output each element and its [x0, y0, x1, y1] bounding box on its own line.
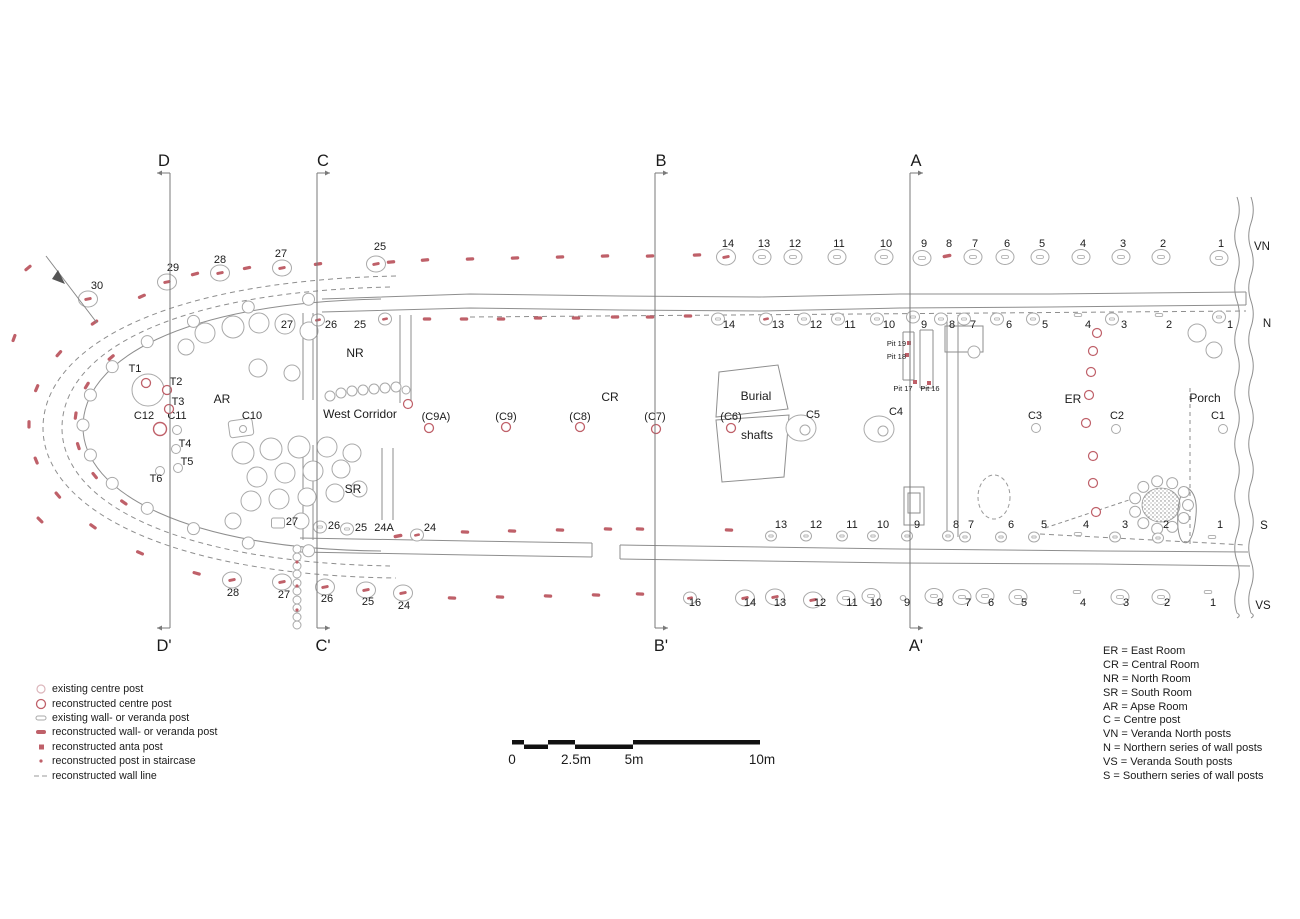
post-number: T6 [150, 473, 163, 485]
apse-wall-stone [187, 523, 199, 535]
post-row-label: VS [1255, 600, 1271, 612]
post-number: 1 [1217, 519, 1223, 531]
post: 25 [367, 241, 387, 272]
apse-wall-stone [77, 419, 89, 431]
post-number: 12 [789, 238, 801, 250]
room-label: West Corridor [323, 407, 397, 421]
stone [178, 339, 194, 355]
post-number: 11 [846, 519, 857, 531]
stone [325, 391, 335, 401]
post-number: 4 [1083, 519, 1089, 531]
reconstructed-post-dash [36, 516, 44, 524]
section-line-A: AA' [909, 152, 923, 655]
post: 4 [1073, 591, 1086, 610]
post: 12 [804, 592, 827, 609]
reconstructed-post-dash [55, 349, 63, 357]
post-number: 1 [1218, 238, 1224, 250]
reconstructed-post-dash [91, 471, 99, 480]
post: 25 [341, 522, 368, 535]
post-number: 3 [1120, 238, 1126, 250]
stone [343, 444, 361, 462]
reconstructed-post-dash [693, 253, 702, 256]
stone [225, 513, 241, 529]
post: 5 [1031, 238, 1049, 265]
post-number: 4 [1085, 319, 1091, 331]
abbreviation-item: VS = Veranda South posts [1103, 755, 1264, 769]
stone [336, 388, 346, 398]
post: T2 [163, 376, 183, 395]
abbreviation-item: ER = East Room [1103, 644, 1264, 658]
post-number: 9 [921, 319, 927, 331]
section-label-top: D [158, 152, 170, 170]
post: 1 [1213, 311, 1234, 331]
post: 4 [1072, 238, 1090, 265]
reconstructed-centre-post [1089, 479, 1098, 488]
reconstructed-post-dash [496, 595, 505, 599]
post-number: 7 [970, 319, 976, 331]
post: 4 [1074, 519, 1089, 536]
post: C12 [134, 410, 167, 436]
post: 25 [354, 313, 392, 331]
post-number: 10 [877, 519, 889, 531]
hearth-stone [1138, 481, 1149, 492]
abbreviation-item: NR = North Room [1103, 672, 1264, 686]
post: C10 [228, 410, 262, 438]
apse-wall-stone [242, 301, 254, 313]
post-number: 24A [374, 522, 394, 534]
stone [380, 383, 390, 393]
reconstructed-post-dash [89, 523, 98, 531]
post-number: 6 [1008, 519, 1014, 531]
post: 11 [832, 313, 856, 331]
section-arrow-icon [918, 171, 923, 176]
archaeological-site-plan-page: 3029282725141312111098765432127262514131… [0, 0, 1300, 919]
reconstructed-post-dash [137, 293, 146, 299]
post: 13 [753, 238, 771, 265]
post-number: 10 [870, 597, 882, 609]
reconstructed-centre-post [1093, 329, 1102, 338]
post-number: 10 [883, 319, 895, 331]
post-number: T1 [129, 363, 142, 375]
post: 1 [1208, 519, 1223, 539]
stone [293, 621, 301, 629]
section-arrow-icon [157, 171, 162, 176]
section-arrow-icon [663, 171, 668, 176]
reconstructed-post-dash [119, 499, 128, 507]
scale-label: 0 [508, 752, 516, 767]
post-number: 13 [774, 597, 786, 609]
post-number: 1 [1227, 319, 1233, 331]
reconstructed-centre-post [1085, 391, 1094, 400]
apse-wall-stone [106, 361, 118, 373]
stone [391, 382, 401, 392]
apse-wall-stone [303, 293, 315, 305]
post-row-label: N [1263, 318, 1271, 330]
legend-item: reconstructed post in staircase [30, 754, 217, 768]
section-label-top: A [910, 152, 921, 170]
post-number: 16 [689, 597, 701, 609]
post-row-label: VN [1254, 241, 1270, 253]
reconstructed-post-dash [421, 258, 430, 262]
reconstructed-post-dash [461, 530, 470, 533]
hearth-stone [1167, 478, 1178, 489]
staircase-post [295, 608, 298, 611]
post-number: C2 [1110, 410, 1124, 422]
reconstructed-post-dash [497, 317, 506, 320]
room-label: Burial [741, 389, 772, 403]
post-number: 8 [946, 238, 952, 250]
reconstructed-post-dash [684, 314, 693, 317]
reconstructed-post-dash [393, 533, 403, 538]
post: 27 [272, 516, 299, 528]
reconstructed-post-dash [556, 255, 565, 258]
post-number: 25 [354, 319, 366, 331]
post-number: 3 [1123, 597, 1129, 609]
reconstructed-post-dash [73, 411, 77, 420]
post: 1 [1204, 591, 1216, 610]
post: T6 [150, 467, 165, 486]
post: 25 [357, 582, 376, 608]
post-number: 5 [1039, 238, 1045, 250]
abbreviation-item: VN = Veranda North posts [1103, 727, 1264, 741]
room-label: Porch [1189, 391, 1220, 405]
reconstructed-post-dash [942, 253, 952, 258]
post-number: 4 [1080, 597, 1086, 609]
scale-segment [548, 740, 575, 745]
post: 14 [717, 238, 736, 265]
apse-wall-stone [106, 477, 118, 489]
post: 28 [211, 254, 230, 281]
reconstructed-post-dash [508, 529, 517, 532]
reconstructed-post-dash [387, 260, 396, 264]
section-line-D: DD' [156, 152, 171, 655]
reconstructed-post-dash [556, 528, 565, 531]
stone [293, 596, 301, 604]
post-number: C3 [1028, 410, 1042, 422]
post-number: 28 [227, 587, 239, 599]
dash-gray-icon [32, 712, 50, 724]
stone [293, 613, 301, 621]
post-number: 7 [965, 597, 971, 609]
post: 14 [712, 313, 736, 331]
post: 5 [1009, 590, 1027, 610]
reconstructed-post-dash [725, 528, 734, 531]
pit-label: Pit 18 [887, 352, 906, 361]
post: 7 [953, 590, 971, 610]
post: 27 [273, 248, 292, 276]
room-label: AR [214, 392, 231, 406]
post: (C9) [495, 411, 516, 432]
post: T5 [174, 456, 194, 473]
post: 11 [837, 519, 858, 541]
post: (C6) [720, 411, 741, 433]
hearth [1130, 476, 1194, 535]
reconstructed-post-dash [27, 420, 30, 429]
stone [288, 436, 310, 458]
hearth-stone [1183, 500, 1194, 511]
abbreviation-item: S = Southern series of wall posts [1103, 769, 1264, 783]
post-number: 25 [362, 596, 374, 608]
post: 6 [996, 519, 1015, 542]
post: C5 [786, 409, 820, 441]
post: 10 [875, 238, 893, 265]
post: 5 [1027, 313, 1049, 331]
post: 10 [868, 519, 890, 541]
post: 7 [964, 238, 982, 265]
reconstructed-post-dash [636, 527, 645, 530]
post: 27 [281, 319, 293, 331]
reconstructed-centre-post [1089, 452, 1098, 461]
post: 2 [1152, 238, 1170, 265]
section-line-B: BB' [654, 152, 668, 655]
post-number: T4 [179, 438, 192, 450]
post-number: 4 [1080, 238, 1086, 250]
post: 9 [900, 596, 910, 610]
post-number: 8 [937, 597, 943, 609]
scale-segment [633, 740, 760, 745]
hearth-stone [1178, 487, 1189, 498]
hearth-stone [1152, 476, 1163, 487]
post-number: 3 [1122, 519, 1128, 531]
stone [347, 386, 357, 396]
post-number: 11 [844, 319, 855, 331]
post-row-label: S [1260, 520, 1268, 532]
scale-label: 5m [625, 752, 644, 767]
reconstructed-centre-post [1087, 368, 1096, 377]
post: C3 [1028, 410, 1042, 433]
reconstructed-post-dash [534, 316, 543, 319]
stone [247, 467, 267, 487]
post: 4 [1074, 314, 1091, 332]
stone [298, 488, 316, 506]
reconstructed-post-dash [636, 592, 645, 596]
post-number: 8 [949, 319, 955, 331]
post: (C8) [569, 411, 590, 432]
post-number: 14 [723, 319, 735, 331]
post: 3 [1106, 313, 1128, 331]
post: 10 [862, 589, 882, 610]
apse-wall-stone [141, 336, 153, 348]
reconstructed-post-dash [24, 264, 33, 272]
reconstructed-post-dash [601, 254, 610, 257]
post: 6 [991, 313, 1013, 331]
post-number: 25 [374, 241, 386, 253]
reconstructed-centre-post [1089, 347, 1098, 356]
abbreviation-item: CR = Central Room [1103, 658, 1264, 672]
stone [369, 384, 379, 394]
post: (C9A) [422, 411, 451, 433]
reconstructed-post-dash [34, 384, 40, 393]
dashline-gray-icon [32, 770, 50, 782]
reconstructed-post-dash [243, 266, 252, 271]
post: C1 [1211, 410, 1228, 434]
post-number: T5 [181, 456, 194, 468]
post: C2 [1110, 410, 1124, 434]
legend-item: reconstructed wall line [30, 768, 217, 782]
post-number: C10 [242, 410, 262, 422]
post: T4 [172, 438, 192, 454]
post-number: 6 [1004, 238, 1010, 250]
pit-labels: Pit 19Pit 18Pit 17Pit 16 [887, 339, 940, 393]
stone [317, 437, 337, 457]
legend-item-label: reconstructed wall- or veranda post [52, 726, 217, 738]
post-number: 7 [968, 519, 974, 531]
stone [358, 385, 368, 395]
post-number: 9 [921, 238, 927, 250]
post-number: 30 [91, 280, 103, 292]
post: 13 [766, 519, 788, 541]
stone [293, 553, 301, 561]
post-number: 25 [355, 522, 367, 534]
post: 9 [913, 238, 931, 266]
hearth-stone [1138, 518, 1149, 529]
stone [293, 545, 301, 553]
post-number: 14 [722, 238, 734, 250]
reconstructed-centre-post [1092, 508, 1101, 517]
post-number: C1 [1211, 410, 1225, 422]
stone [968, 346, 980, 358]
post: 1 [1210, 238, 1228, 266]
post-number: 2 [1160, 238, 1166, 250]
post: 24 [394, 585, 413, 612]
post-number: 6 [988, 597, 994, 609]
room-label: CR [601, 390, 619, 404]
post-number: 2 [1163, 519, 1169, 531]
reconstructed-post-dash [76, 442, 82, 451]
north-arrow-icon [46, 256, 97, 323]
section-label-bottom: D' [156, 637, 171, 655]
stone [293, 570, 301, 578]
post-number: C5 [806, 409, 820, 421]
stone [332, 460, 350, 478]
reconstructed-post-dash [314, 262, 323, 266]
room-label: ER [1065, 392, 1082, 406]
legend-item: existing wall- or veranda post [30, 711, 217, 725]
post-number: 3 [1121, 319, 1127, 331]
reconstructed-post-dash [135, 550, 144, 556]
post-number: 26 [328, 520, 340, 532]
stone [249, 313, 269, 333]
post-number: 13 [758, 238, 770, 250]
staircase-post [295, 584, 298, 587]
hearth-stone [1130, 506, 1141, 517]
post-number: (C9A) [422, 411, 451, 423]
reconstructed-post-dash [544, 594, 553, 598]
post-number: C4 [889, 406, 903, 418]
post-number: 13 [772, 319, 784, 331]
abbreviation-item: AR = Apse Room [1103, 700, 1264, 714]
post-number: T2 [170, 376, 183, 388]
scale-label: 10m [749, 752, 775, 767]
stone [1206, 342, 1222, 358]
legend-item: reconstructed centre post [30, 696, 217, 710]
stone [402, 386, 410, 394]
anta-posts [905, 341, 931, 385]
post: 11 [837, 591, 858, 610]
dot-red-icon [32, 755, 50, 767]
post-number: 27 [286, 516, 298, 528]
section-label-bottom: B' [654, 637, 668, 655]
post-number: 13 [775, 519, 787, 531]
stone [232, 442, 254, 464]
post-number: 28 [214, 254, 226, 266]
reconstructed-post-dash [33, 456, 39, 465]
post-number: 24 [424, 522, 436, 534]
stone [241, 491, 261, 511]
post-number: 14 [744, 597, 756, 609]
reconstructed-post-dash [54, 491, 62, 500]
reconstructed-post-dash [646, 315, 655, 318]
post: 10 [871, 313, 896, 331]
stone [284, 365, 300, 381]
post: 3 [1112, 238, 1130, 265]
pit-label: Pit 19 [887, 339, 906, 348]
post: 12 [798, 313, 823, 331]
post: 6 [976, 589, 994, 610]
legend-item-label: reconstructed wall line [52, 770, 157, 782]
post: 6 [996, 238, 1014, 265]
room-label: SR [345, 482, 362, 496]
room-label: NR [346, 346, 364, 360]
post-number: C12 [134, 410, 154, 422]
post: 26 [316, 579, 335, 605]
symbol-legend: existing centre postreconstructed centre… [30, 682, 217, 783]
legend-item: existing centre post [30, 682, 217, 696]
apse-wall-stone [242, 537, 254, 549]
post-number: 9 [904, 597, 910, 609]
reconstructed-post-dash [423, 317, 432, 320]
post: 24A [374, 522, 403, 539]
post-number: 5 [1042, 319, 1048, 331]
hearth-fill [1142, 488, 1180, 522]
reconstructed-post-dash [190, 271, 199, 276]
legend-item-label: reconstructed anta post [52, 741, 163, 753]
post-number: 27 [278, 589, 290, 601]
legend-item-label: reconstructed centre post [52, 698, 172, 710]
reconstructed-post-dash [611, 315, 620, 318]
section-arrow-icon [325, 171, 330, 176]
pit-label: Pit 17 [893, 384, 912, 393]
legend-item-label: existing wall- or veranda post [52, 712, 189, 724]
post: 29 [158, 262, 180, 290]
post-number: 27 [281, 319, 293, 331]
scale-segment [512, 740, 524, 745]
hearth-stone [1178, 512, 1189, 523]
abbreviation-item: C = Centre post [1103, 713, 1264, 727]
section-label-top: B [655, 152, 666, 170]
stone [249, 359, 267, 377]
post: 13 [766, 589, 787, 609]
section-label-bottom: A' [909, 637, 923, 655]
reconstructed-post-dash [604, 527, 613, 530]
apse-wall-stone [84, 389, 96, 401]
hearth-stone [1130, 493, 1141, 504]
post-number: (C8) [569, 411, 590, 423]
post: 24 [411, 522, 437, 541]
reconstructed-post-dash [646, 254, 655, 257]
room-label: shafts [741, 428, 773, 442]
section-label-bottom: C' [315, 637, 330, 655]
post-number: 10 [880, 238, 892, 250]
reconstructed-post-dash [460, 317, 469, 320]
post: 2 [1155, 314, 1172, 332]
reconstructed-post-dash [192, 571, 201, 576]
scale-label: 2.5m [561, 752, 591, 767]
abbreviation-item: SR = South Room [1103, 686, 1264, 700]
post-number: 26 [325, 319, 337, 331]
post-number: 8 [953, 519, 959, 531]
post-number: (C6) [720, 411, 741, 423]
